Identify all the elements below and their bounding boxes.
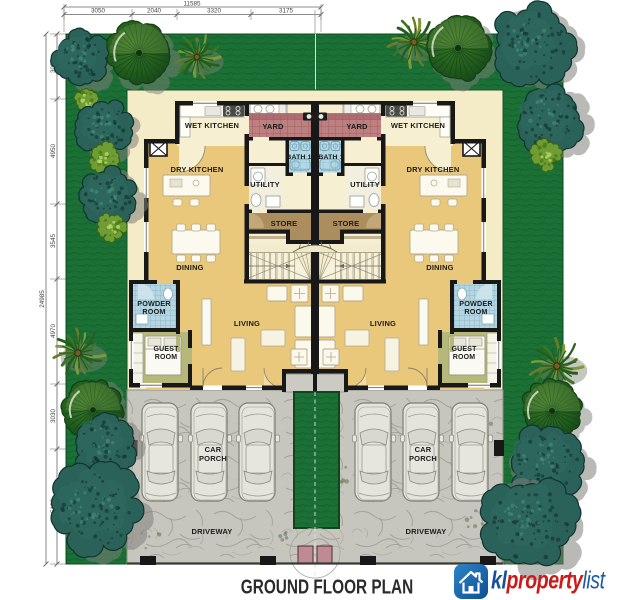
svg-text:DRY KITCHEN: DRY KITCHEN xyxy=(406,165,459,174)
svg-text:STORE: STORE xyxy=(271,219,298,228)
svg-text:3050: 3050 xyxy=(91,8,106,15)
svg-text:ROOM: ROOM xyxy=(464,307,487,316)
svg-text:3545: 3545 xyxy=(50,234,57,249)
svg-text:DINING: DINING xyxy=(176,263,203,272)
svg-text:CAR: CAR xyxy=(415,445,432,454)
svg-text:YARD: YARD xyxy=(346,122,368,131)
svg-text:PORCH: PORCH xyxy=(199,454,227,463)
svg-text:WET KITCHEN: WET KITCHEN xyxy=(185,121,239,130)
svg-text:DRY KITCHEN: DRY KITCHEN xyxy=(170,165,223,174)
svg-text:LIVING: LIVING xyxy=(234,319,260,328)
svg-text:STORE: STORE xyxy=(333,219,360,228)
svg-text:ROOM: ROOM xyxy=(155,354,178,361)
svg-text:11585: 11585 xyxy=(183,1,201,8)
svg-text:GUEST: GUEST xyxy=(451,346,477,353)
svg-text:4950: 4950 xyxy=(50,144,57,159)
svg-text:ROOM: ROOM xyxy=(453,354,476,361)
svg-text:DRIVEWAY: DRIVEWAY xyxy=(192,527,233,536)
svg-text:WET KITCHEN: WET KITCHEN xyxy=(391,121,445,130)
svg-text:LIVING: LIVING xyxy=(370,319,396,328)
svg-text:CAR: CAR xyxy=(205,445,222,454)
svg-text:klpropertylist: klpropertylist xyxy=(491,566,606,594)
svg-text:BATH 1: BATH 1 xyxy=(318,154,343,161)
svg-text:YARD: YARD xyxy=(262,122,284,131)
svg-text:3030: 3030 xyxy=(50,409,57,424)
svg-text:3320: 3320 xyxy=(207,8,222,15)
svg-text:ROOM: ROOM xyxy=(142,307,165,316)
svg-text:24985: 24985 xyxy=(39,290,46,308)
svg-text:DINING: DINING xyxy=(426,263,453,272)
svg-text:GUEST: GUEST xyxy=(153,346,179,353)
svg-text:2040: 2040 xyxy=(147,8,162,15)
svg-text:4970: 4970 xyxy=(50,324,57,339)
svg-text:UTILITY: UTILITY xyxy=(250,180,280,189)
svg-text:3175: 3175 xyxy=(279,8,294,15)
svg-text:UTILITY: UTILITY xyxy=(350,180,380,189)
svg-text:PORCH: PORCH xyxy=(409,454,437,463)
svg-text:BATH 1: BATH 1 xyxy=(286,154,311,161)
svg-text:DRIVEWAY: DRIVEWAY xyxy=(406,527,447,536)
svg-text:GROUND FLOOR PLAN: GROUND FLOOR PLAN xyxy=(241,575,413,598)
